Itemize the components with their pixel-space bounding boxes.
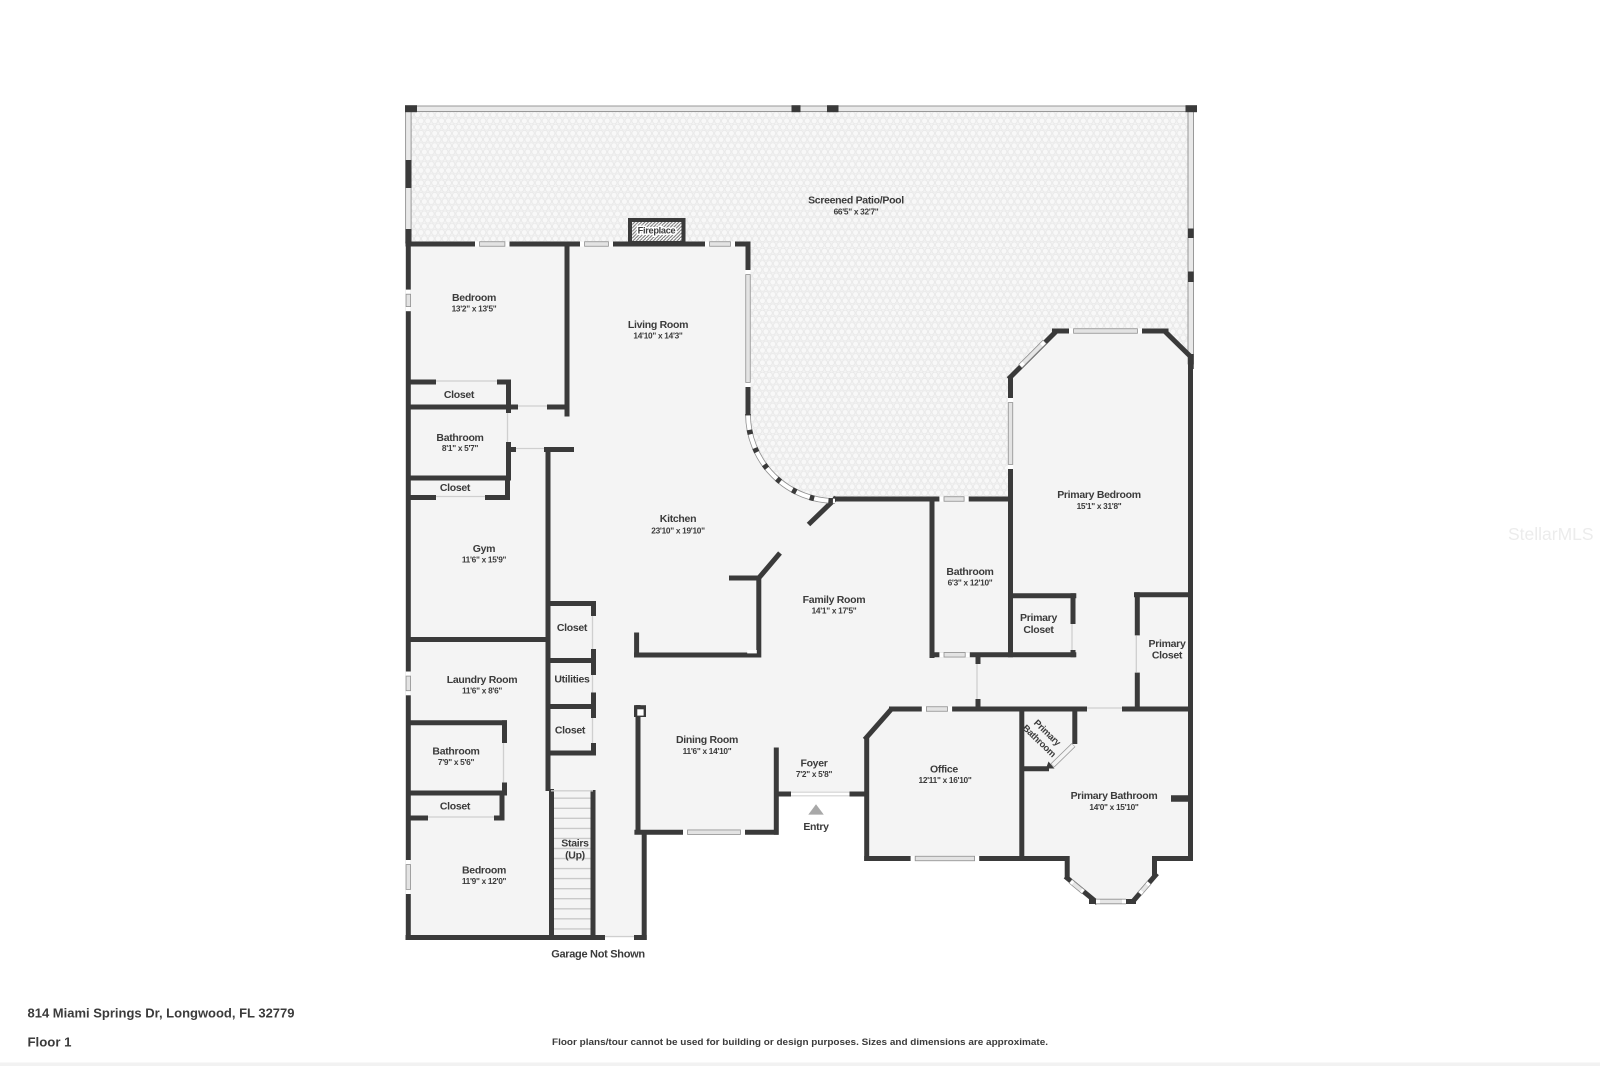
svg-text:Floor plans/tour cannot be use: Floor plans/tour cannot be used for buil…: [552, 1036, 1048, 1047]
svg-text:15'1" x 31'8": 15'1" x 31'8": [1077, 501, 1122, 511]
svg-text:Kitchen: Kitchen: [660, 513, 696, 525]
svg-text:7'2" x 5'8": 7'2" x 5'8": [796, 769, 833, 779]
svg-text:Entry: Entry: [803, 821, 829, 833]
svg-text:Bathroom: Bathroom: [432, 745, 479, 757]
svg-text:Floor 1: Floor 1: [27, 1034, 71, 1049]
svg-text:Stairs: Stairs: [561, 837, 589, 849]
svg-text:814 Miami Springs Dr, Longwood: 814 Miami Springs Dr, Longwood, FL 32779: [27, 1005, 294, 1020]
svg-text:Closet: Closet: [557, 622, 588, 634]
svg-text:Living Room: Living Room: [628, 319, 688, 331]
svg-text:Closet: Closet: [555, 724, 586, 736]
svg-text:12'11" x 16'10": 12'11" x 16'10": [918, 775, 971, 785]
svg-text:Primary Bathroom: Primary Bathroom: [1071, 790, 1158, 802]
svg-text:Dining Room: Dining Room: [676, 734, 738, 746]
svg-text:Closet: Closet: [1023, 624, 1054, 636]
svg-text:Gym: Gym: [473, 543, 495, 555]
svg-text:Office: Office: [930, 764, 958, 776]
svg-text:11'6" x 14'10": 11'6" x 14'10": [683, 746, 732, 756]
svg-text:Closet: Closet: [1152, 650, 1183, 662]
svg-text:Family Room: Family Room: [803, 594, 866, 606]
svg-text:23'10" x 19'10": 23'10" x 19'10": [651, 525, 705, 535]
svg-text:Utilities: Utilities: [554, 673, 590, 685]
svg-text:Primary Bedroom: Primary Bedroom: [1057, 489, 1141, 501]
svg-text:11'6" x 8'6": 11'6" x 8'6": [462, 685, 502, 695]
svg-text:14'0" x 15'10": 14'0" x 15'10": [1089, 802, 1139, 812]
svg-text:7'9" x 5'6": 7'9" x 5'6": [438, 757, 475, 767]
svg-text:8'1" x 5'7": 8'1" x 5'7": [442, 443, 479, 453]
svg-text:Bedroom: Bedroom: [452, 292, 496, 304]
svg-text:Closet: Closet: [444, 389, 475, 401]
svg-text:Primary: Primary: [1020, 612, 1057, 624]
svg-text:Bathroom: Bathroom: [946, 566, 993, 578]
svg-text:Closet: Closet: [440, 800, 471, 812]
svg-text:66'5" x 32'7": 66'5" x 32'7": [834, 207, 879, 217]
svg-text:13'2" x 13'5": 13'2" x 13'5": [452, 303, 497, 313]
svg-text:14'1" x 17'5": 14'1" x 17'5": [812, 606, 857, 616]
svg-text:14'10" x 14'3": 14'10" x 14'3": [633, 330, 683, 340]
svg-text:Closet: Closet: [440, 482, 471, 494]
svg-text:StellarMLS: StellarMLS: [1508, 524, 1594, 544]
svg-text:11'6" x 15'9": 11'6" x 15'9": [462, 554, 507, 564]
svg-text:6'3" x 12'10": 6'3" x 12'10": [948, 578, 993, 588]
svg-text:Foyer: Foyer: [800, 758, 827, 770]
svg-text:Primary: Primary: [1148, 638, 1185, 650]
svg-text:Laundry Room: Laundry Room: [447, 674, 518, 686]
svg-text:11'9" x 12'0": 11'9" x 12'0": [462, 876, 507, 886]
svg-text:Screened Patio/Pool: Screened Patio/Pool: [808, 195, 904, 207]
svg-text:Bedroom: Bedroom: [462, 864, 506, 876]
svg-text:Fireplace: Fireplace: [638, 226, 676, 236]
svg-text:(Up): (Up): [565, 849, 585, 861]
svg-text:Garage Not Shown: Garage Not Shown: [551, 948, 645, 960]
